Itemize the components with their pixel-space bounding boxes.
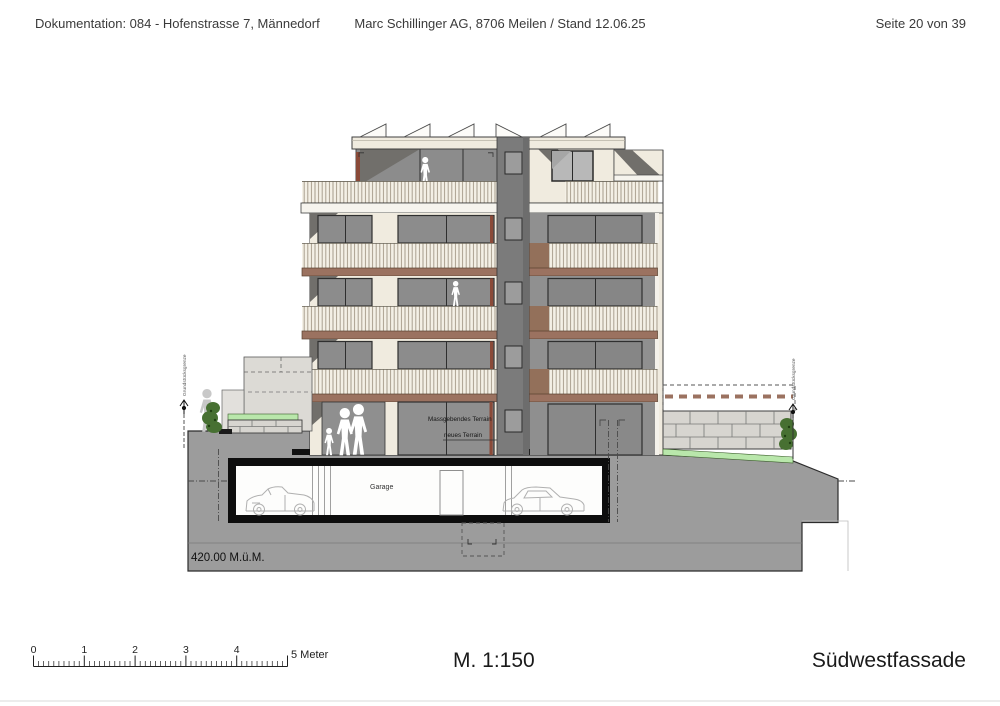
terrain-new-label: neues Terrain xyxy=(444,432,483,439)
floor-2 xyxy=(302,276,659,339)
floor-3 xyxy=(302,213,659,276)
floor-1 xyxy=(302,339,659,402)
facade-drawing: 420.00 M.ü.M. xyxy=(0,0,1000,706)
site-right: Grundstücksgrenze xyxy=(663,358,797,463)
scale-bar-number: 2 xyxy=(132,644,138,656)
drawing-sheet: Dokumentation: 084 - Hofenstrasse 7, Män… xyxy=(0,0,1000,706)
boundary-right-label: Grundstücksgrenze xyxy=(791,358,797,400)
roof-slab xyxy=(352,137,625,149)
drawing-title: Südwestfassade xyxy=(812,649,966,673)
terrain-existing-label: Massgebendes Terrain xyxy=(428,416,492,423)
stair-core xyxy=(497,137,529,455)
solar-panel-icons xyxy=(360,124,610,137)
grass-strip-left xyxy=(228,414,298,420)
building: Massgebendes Terrain neues Terrain xyxy=(292,124,663,455)
shrub-right xyxy=(779,418,797,450)
scale-bar-unit-label: 5 Meter xyxy=(291,649,329,661)
boundary-left-label: Grundstücksgrenze xyxy=(182,354,188,396)
stone-wall-right xyxy=(663,411,791,449)
scale-bar-number: 0 xyxy=(31,644,37,656)
garage-label: Garage xyxy=(370,484,393,491)
elevation-label: 420.00 M.ü.M. xyxy=(191,552,265,564)
scale-bar: 01234 xyxy=(31,644,288,667)
attic-level xyxy=(302,124,663,203)
scale-bar-number: 1 xyxy=(81,644,87,656)
attic-side-slab xyxy=(614,175,663,181)
stone-wall-left xyxy=(228,420,302,433)
scale-bar-number: 3 xyxy=(183,644,189,656)
excavation-outline xyxy=(802,521,848,571)
attic-slab-band xyxy=(301,203,663,213)
ground-floor: Massgebendes Terrain neues Terrain xyxy=(292,402,659,455)
attic-railing xyxy=(302,181,659,203)
garage-interior xyxy=(236,466,602,515)
scale-bar-number: 4 xyxy=(234,644,240,656)
boundary-left: Grundstücksgrenze xyxy=(180,354,188,449)
scale-text: M. 1:150 xyxy=(453,649,535,673)
survey-marker-icon xyxy=(180,400,188,414)
entry-step xyxy=(292,449,310,455)
